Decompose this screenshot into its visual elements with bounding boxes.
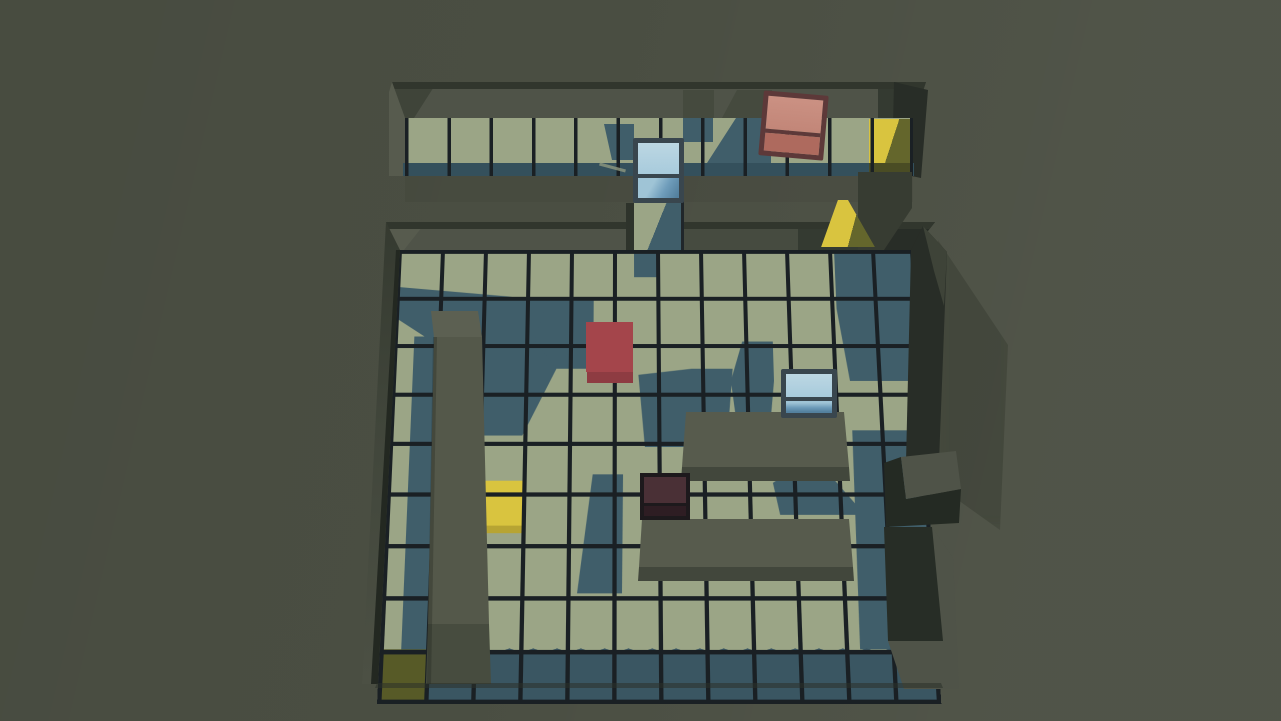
pillar-top-face (426, 311, 491, 337)
platform-lower (638, 519, 854, 581)
strip-wall-top-edge (392, 82, 926, 89)
glass-cube-main-front-face (786, 401, 832, 413)
dark-cube[interactable] (640, 473, 690, 520)
glass-cube-upper-front-face (638, 178, 679, 198)
dark-cube-front-face (644, 506, 686, 516)
salmon-cube-top-face (766, 96, 824, 134)
red-block-front (587, 372, 633, 383)
bridge-center[interactable] (634, 200, 684, 250)
platform-upper (681, 412, 850, 481)
salmon-cube-front-face (764, 133, 820, 156)
game-viewport[interactable] (0, 0, 1281, 721)
dark-cube-top-face (644, 477, 686, 503)
room-right-wall-lower (884, 527, 959, 689)
right-wall-stub (884, 451, 961, 527)
platform-lower-top (638, 519, 854, 567)
red-block-top (586, 322, 633, 372)
glass-cube-upper[interactable] (633, 138, 684, 203)
glass-cube-main-top-face (786, 374, 832, 397)
pillar-wall (426, 311, 491, 684)
glass-cube-main[interactable] (781, 369, 837, 418)
platform-lower-front (638, 567, 854, 581)
strip-back-wall (392, 82, 926, 118)
salmon-cube[interactable] (758, 90, 828, 160)
pillar-front-face (426, 624, 491, 684)
red-block[interactable] (586, 322, 633, 383)
platform-upper-front (681, 467, 850, 481)
glass-cube-upper-top-face (638, 143, 679, 174)
strip-wall-shadow-glass (683, 90, 714, 118)
platform-upper-top (681, 412, 850, 467)
room-bottom-edge (375, 683, 943, 688)
